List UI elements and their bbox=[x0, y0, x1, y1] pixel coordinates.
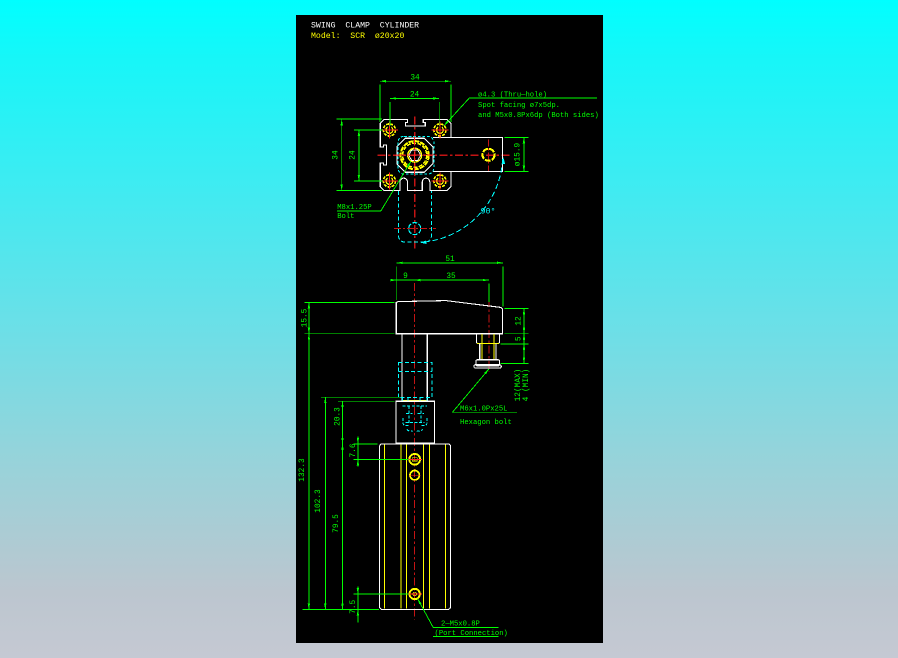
svg-text:Hexagon bolt: Hexagon bolt bbox=[460, 419, 512, 427]
svg-text:SWING CLAMP CYLINDER: SWING CLAMP CYLINDER bbox=[311, 22, 419, 31]
svg-text:35: 35 bbox=[446, 273, 456, 281]
svg-text:51: 51 bbox=[445, 256, 455, 264]
svg-text:102.3: 102.3 bbox=[315, 489, 323, 513]
svg-text:79.5: 79.5 bbox=[333, 514, 341, 533]
svg-text:12: 12 bbox=[516, 316, 524, 326]
svg-text:2—M5x0.8P: 2—M5x0.8P bbox=[441, 621, 480, 629]
svg-text:Spot facing ø7x5dp.: Spot facing ø7x5dp. bbox=[478, 102, 560, 110]
svg-text:M6x1.0Px25L: M6x1.0Px25L bbox=[460, 406, 507, 414]
svg-text:ø15.9: ø15.9 bbox=[515, 142, 523, 166]
svg-text:7.5: 7.5 bbox=[350, 599, 358, 613]
svg-text:24: 24 bbox=[410, 92, 420, 100]
svg-text:and M5x0.8Px6dp (Both sides): and M5x0.8Px6dp (Both sides) bbox=[478, 112, 599, 120]
svg-text:132.3: 132.3 bbox=[299, 458, 307, 482]
svg-text:Bolt: Bolt bbox=[337, 213, 354, 221]
svg-text:12(MAX): 12(MAX) bbox=[515, 369, 523, 402]
svg-text:Model: SCR ø20x20: Model: SCR ø20x20 bbox=[311, 31, 404, 41]
svg-text:24: 24 bbox=[350, 150, 358, 160]
svg-text:90°: 90° bbox=[481, 207, 496, 217]
svg-text:15.5: 15.5 bbox=[301, 308, 309, 327]
svg-text:4 (MIN): 4 (MIN) bbox=[523, 369, 531, 402]
svg-text:20.3: 20.3 bbox=[335, 407, 343, 426]
svg-text:ø4.3 (Thru—hole): ø4.3 (Thru—hole) bbox=[478, 92, 547, 100]
svg-text:34: 34 bbox=[333, 150, 341, 160]
svg-text:7.6: 7.6 bbox=[350, 443, 358, 457]
svg-text:34: 34 bbox=[410, 74, 420, 82]
svg-text:5: 5 bbox=[516, 336, 524, 341]
svg-text:9: 9 bbox=[403, 273, 408, 281]
